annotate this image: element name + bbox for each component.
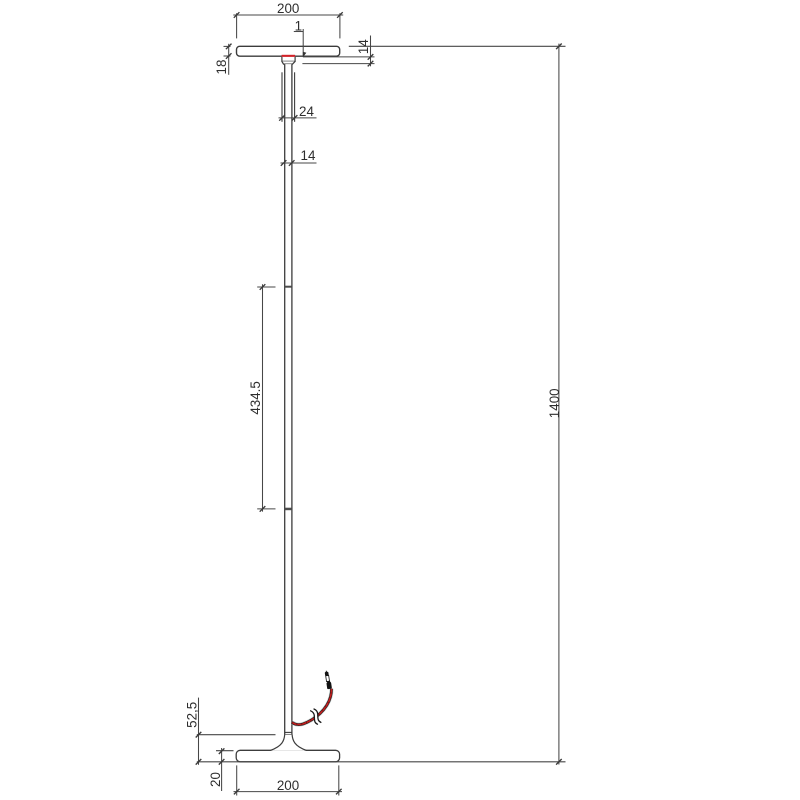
svg-text:14: 14: [356, 39, 371, 54]
svg-text:1400: 1400: [547, 388, 562, 418]
svg-text:14: 14: [301, 148, 316, 163]
svg-text:1: 1: [295, 19, 302, 34]
svg-text:200: 200: [277, 778, 299, 793]
svg-text:20: 20: [208, 772, 223, 787]
svg-text:200: 200: [277, 1, 299, 16]
svg-text:434.5: 434.5: [248, 381, 263, 415]
svg-text:18: 18: [214, 60, 229, 75]
svg-text:24: 24: [299, 104, 314, 119]
svg-text:52,5: 52,5: [184, 702, 199, 728]
